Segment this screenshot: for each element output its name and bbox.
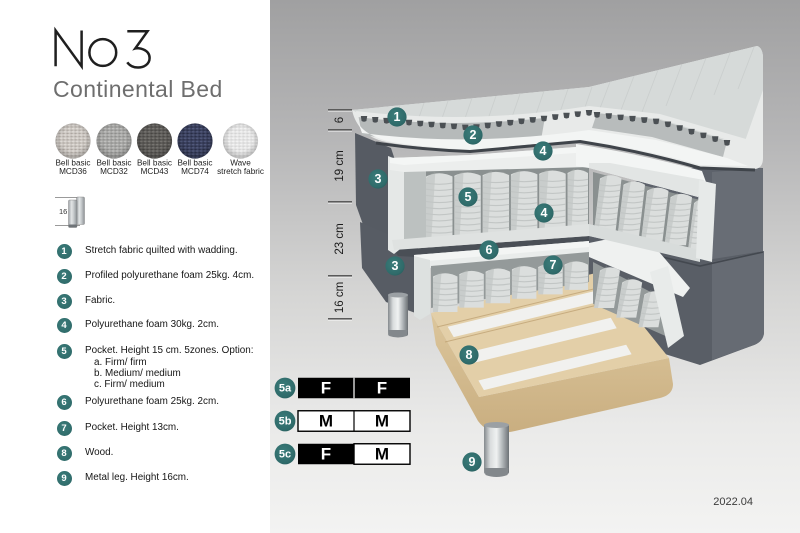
svg-text:23 cm: 23 cm [334, 223, 346, 254]
svg-text:7: 7 [550, 258, 557, 272]
svg-text:19 cm: 19 cm [334, 150, 346, 181]
svg-text:16 cm: 16 cm [334, 282, 346, 313]
svg-text:4: 4 [540, 144, 547, 158]
svg-text:5b: 5b [279, 415, 292, 427]
svg-text:1: 1 [394, 110, 401, 124]
svg-text:6: 6 [486, 243, 493, 257]
svg-text:2: 2 [470, 128, 477, 142]
svg-text:5a: 5a [279, 382, 292, 394]
svg-text:MCD74: MCD74 [181, 167, 209, 176]
svg-text:5: 5 [465, 190, 472, 204]
svg-text:Bell basic: Bell basic [137, 159, 172, 168]
svg-text:Bell basic: Bell basic [96, 159, 131, 168]
svg-text:16: 16 [59, 207, 67, 216]
svg-text:stretch fabric: stretch fabric [217, 167, 264, 176]
svg-text:M: M [375, 444, 389, 463]
svg-text:5c: 5c [279, 448, 291, 460]
svg-text:MCD36: MCD36 [59, 167, 87, 176]
svg-text:MCD32: MCD32 [100, 167, 128, 176]
svg-text:3: 3 [375, 172, 382, 186]
svg-text:Bell basic: Bell basic [55, 159, 90, 168]
svg-text:8: 8 [466, 348, 473, 362]
svg-text:F: F [321, 444, 331, 463]
svg-text:Bell basic: Bell basic [177, 159, 212, 168]
svg-text:MCD43: MCD43 [141, 167, 169, 176]
svg-text:Wave: Wave [230, 159, 251, 168]
svg-text:F: F [377, 378, 387, 397]
svg-text:2022.04: 2022.04 [713, 496, 753, 508]
svg-text:M: M [319, 411, 333, 430]
svg-text:F: F [321, 378, 331, 397]
svg-text:M: M [375, 411, 389, 430]
svg-text:4: 4 [541, 206, 548, 220]
svg-text:6: 6 [334, 117, 346, 123]
svg-text:9: 9 [469, 455, 476, 469]
svg-text:3: 3 [392, 259, 399, 273]
